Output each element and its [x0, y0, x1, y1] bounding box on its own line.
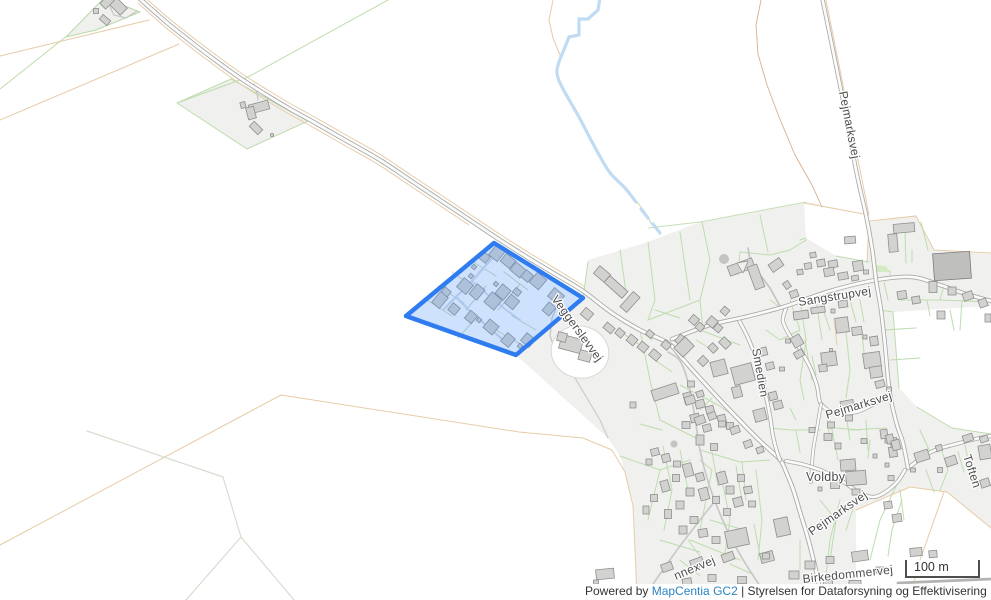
svg-text:Voldby: Voldby — [806, 470, 846, 484]
